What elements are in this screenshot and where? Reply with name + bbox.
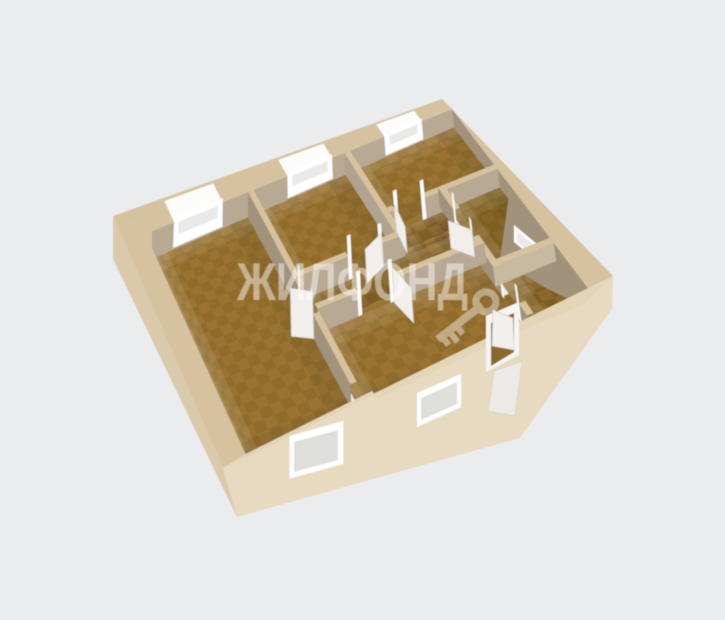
svg-text:ЖИЛФОНД: ЖИЛФОНД [236,253,468,312]
